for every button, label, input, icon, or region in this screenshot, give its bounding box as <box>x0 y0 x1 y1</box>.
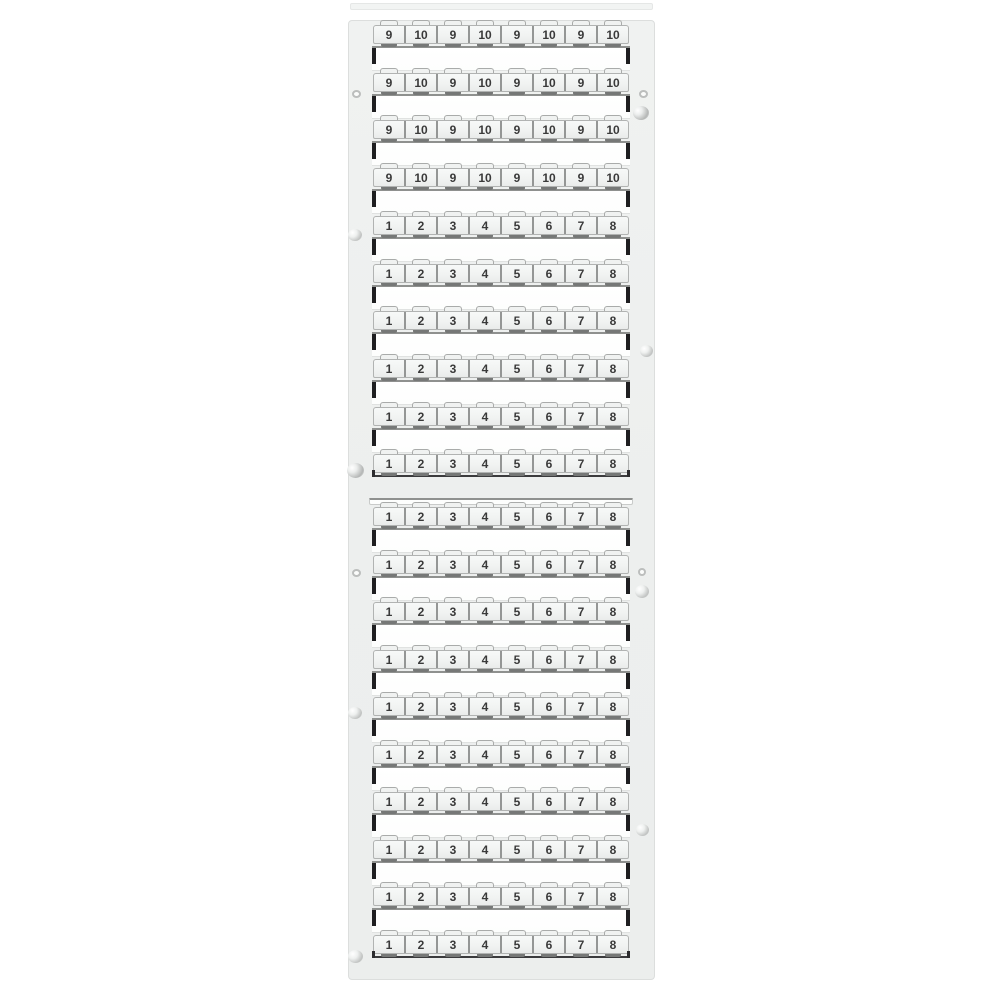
marker-tag: 1 <box>374 651 404 668</box>
marker-tag: 3 <box>436 698 468 715</box>
marker-tag: 2 <box>404 312 436 329</box>
tag-bump <box>469 597 501 602</box>
marker-tag: 5 <box>500 936 532 953</box>
tag-label: 8 <box>610 890 617 904</box>
marker-tag: 3 <box>436 265 468 282</box>
tag-feet <box>373 235 629 239</box>
tag-label: 3 <box>450 843 457 857</box>
tag-bump <box>597 354 629 359</box>
pilot-hole <box>639 90 648 98</box>
tag-bump <box>469 550 501 555</box>
tag-label: 8 <box>610 314 617 328</box>
marker-tag: 9 <box>564 26 596 43</box>
tag-label: 8 <box>610 843 617 857</box>
marker-card: 9109109109109109109109109109109109109109… <box>348 20 655 980</box>
tag-label: 10 <box>414 171 427 185</box>
tag-label: 2 <box>418 410 425 424</box>
tag-foot <box>373 669 405 673</box>
tag-foot <box>405 716 437 720</box>
tag-foot <box>597 859 629 863</box>
marker-tag-strip: 12345678 <box>373 935 629 954</box>
marker-tag: 6 <box>532 888 564 905</box>
marker-row: 12345678 <box>373 935 629 982</box>
tag-foot <box>469 621 501 625</box>
tag-foot <box>437 92 469 96</box>
tag-label: 1 <box>386 795 393 809</box>
tag-bump <box>565 449 597 454</box>
tag-label: 3 <box>450 700 457 714</box>
tag-foot <box>405 906 437 910</box>
tag-foot <box>533 764 565 768</box>
tag-bump <box>373 211 405 216</box>
marker-tag: 5 <box>500 360 532 377</box>
marker-tag-strip: 12345678 <box>373 887 629 906</box>
tag-label: 9 <box>578 76 585 90</box>
tag-foot <box>501 426 533 430</box>
tag-bump <box>565 402 597 407</box>
marker-tag: 1 <box>374 360 404 377</box>
pilot-hole <box>352 569 361 577</box>
tag-foot <box>533 92 565 96</box>
marker-tag: 9 <box>374 26 404 43</box>
marker-tag: 4 <box>468 888 500 905</box>
tag-bump <box>373 449 405 454</box>
tag-label: 8 <box>610 748 617 762</box>
marker-tag: 9 <box>564 74 596 91</box>
tag-label: 1 <box>386 410 393 424</box>
marker-tag: 10 <box>468 26 500 43</box>
tag-foot <box>501 669 533 673</box>
tag-bump <box>405 68 437 73</box>
tag-label: 10 <box>414 76 427 90</box>
tag-bump <box>533 787 565 792</box>
tag-label: 8 <box>610 267 617 281</box>
tag-label: 8 <box>610 938 617 952</box>
marker-tag: 2 <box>404 455 436 472</box>
tag-foot <box>469 716 501 720</box>
tag-foot <box>533 187 565 191</box>
tag-label: 10 <box>414 123 427 137</box>
tag-foot <box>405 283 437 287</box>
marker-tag: 8 <box>596 936 628 953</box>
tag-foot <box>533 526 565 530</box>
marker-tag: 1 <box>374 217 404 234</box>
tag-label: 8 <box>610 558 617 572</box>
tag-bump <box>437 211 469 216</box>
tag-label: 5 <box>514 795 521 809</box>
marker-tag: 9 <box>436 74 468 91</box>
tag-label: 6 <box>546 362 553 376</box>
mold-mark <box>636 824 649 836</box>
pilot-hole <box>352 90 361 98</box>
marker-tag: 9 <box>500 169 532 186</box>
tag-foot <box>437 669 469 673</box>
tag-foot <box>565 811 597 815</box>
tag-label: 7 <box>578 510 585 524</box>
tag-label: 4 <box>482 314 489 328</box>
tag-bump <box>373 787 405 792</box>
marker-tag: 3 <box>436 408 468 425</box>
tag-label: 6 <box>546 267 553 281</box>
tag-label: 5 <box>514 938 521 952</box>
tag-label: 7 <box>578 362 585 376</box>
tag-label: 4 <box>482 410 489 424</box>
tag-bump <box>501 20 533 25</box>
marker-tag-strip: 12345678 <box>373 311 629 330</box>
tag-label: 10 <box>606 76 619 90</box>
tag-bump <box>533 402 565 407</box>
tag-foot <box>501 621 533 625</box>
marker-tag: 10 <box>596 169 628 186</box>
tag-foot <box>565 574 597 578</box>
upper-marker-section: 9109109109109109109109109109109109109109… <box>373 25 629 479</box>
tag-label: 1 <box>386 700 393 714</box>
tag-foot <box>597 187 629 191</box>
tag-label: 10 <box>606 28 619 42</box>
tag-bump <box>501 882 533 887</box>
tag-foot <box>405 44 437 48</box>
tag-foot <box>501 235 533 239</box>
marker-tag: 6 <box>532 265 564 282</box>
tag-feet <box>373 330 629 334</box>
tag-label: 5 <box>514 510 521 524</box>
tag-label: 6 <box>546 938 553 952</box>
tag-bumps <box>373 20 629 25</box>
tag-foot <box>565 906 597 910</box>
marker-tag: 2 <box>404 841 436 858</box>
tag-feet <box>373 44 629 48</box>
marker-tag: 5 <box>500 841 532 858</box>
tag-bump <box>597 550 629 555</box>
tag-label: 6 <box>546 653 553 667</box>
tag-foot <box>373 187 405 191</box>
tag-label: 1 <box>386 219 393 233</box>
tag-bump <box>469 740 501 745</box>
tag-label: 2 <box>418 938 425 952</box>
tag-bump <box>565 163 597 168</box>
tag-label: 3 <box>450 653 457 667</box>
tag-foot <box>405 235 437 239</box>
tag-label: 9 <box>450 171 457 185</box>
tag-bump <box>597 882 629 887</box>
tag-foot <box>501 330 533 334</box>
marker-tag: 8 <box>596 508 628 525</box>
tag-foot <box>373 764 405 768</box>
tag-label: 9 <box>386 76 393 90</box>
tag-foot <box>405 811 437 815</box>
tag-label: 2 <box>418 843 425 857</box>
marker-tag-strip: 12345678 <box>373 555 629 574</box>
marker-tag: 6 <box>532 455 564 472</box>
marker-tag: 7 <box>564 651 596 668</box>
tag-foot <box>597 669 629 673</box>
tag-foot <box>437 473 469 477</box>
tag-bump <box>437 835 469 840</box>
tag-feet <box>373 378 629 382</box>
tag-bump <box>565 68 597 73</box>
tag-bump <box>469 354 501 359</box>
tag-label: 7 <box>578 267 585 281</box>
tag-bump <box>501 68 533 73</box>
marker-tag: 2 <box>404 698 436 715</box>
tag-label: 6 <box>546 605 553 619</box>
marker-tag: 1 <box>374 455 404 472</box>
tag-feet <box>373 764 629 768</box>
tag-bump <box>597 787 629 792</box>
tag-foot <box>469 330 501 334</box>
tag-foot <box>501 906 533 910</box>
tag-foot <box>437 764 469 768</box>
marker-tag: 5 <box>500 651 532 668</box>
tag-label: 1 <box>386 653 393 667</box>
tag-foot <box>533 811 565 815</box>
tag-bumps <box>373 835 629 840</box>
marker-tag: 9 <box>436 121 468 138</box>
tag-label: 2 <box>418 748 425 762</box>
tag-bump <box>437 930 469 935</box>
tag-foot <box>533 669 565 673</box>
tag-label: 1 <box>386 362 393 376</box>
tag-label: 8 <box>610 510 617 524</box>
marker-tag: 1 <box>374 556 404 573</box>
marker-tag: 8 <box>596 746 628 763</box>
marker-tag-strip: 12345678 <box>373 602 629 621</box>
tag-label: 5 <box>514 843 521 857</box>
tag-bump <box>437 550 469 555</box>
tag-label: 6 <box>546 795 553 809</box>
tag-bump <box>373 740 405 745</box>
tag-label: 10 <box>606 123 619 137</box>
tag-bump <box>565 550 597 555</box>
marker-tag: 3 <box>436 841 468 858</box>
tag-bump <box>405 20 437 25</box>
tag-label: 1 <box>386 938 393 952</box>
marker-row: 12345678 <box>373 602 629 649</box>
tag-foot <box>501 44 533 48</box>
marker-tag: 10 <box>468 121 500 138</box>
marker-row: 12345678 <box>373 697 629 744</box>
tag-foot <box>405 330 437 334</box>
tag-foot <box>501 378 533 382</box>
marker-tag: 2 <box>404 360 436 377</box>
marker-tag: 4 <box>468 936 500 953</box>
tag-foot <box>501 811 533 815</box>
marker-tag: 5 <box>500 603 532 620</box>
marker-tag-strip: 12345678 <box>373 792 629 811</box>
tag-bump <box>565 787 597 792</box>
tag-bump <box>565 211 597 216</box>
tag-bump <box>405 645 437 650</box>
marker-row: 910910910910 <box>373 25 629 72</box>
tag-foot <box>501 92 533 96</box>
tag-bump <box>373 550 405 555</box>
tag-label: 4 <box>482 558 489 572</box>
tag-foot <box>469 378 501 382</box>
tag-foot <box>597 330 629 334</box>
tag-label: 4 <box>482 843 489 857</box>
tag-foot <box>501 283 533 287</box>
marker-row: 910910910910 <box>373 168 629 215</box>
tag-foot <box>565 139 597 143</box>
marker-tag: 10 <box>404 169 436 186</box>
tag-bump <box>405 115 437 120</box>
tag-label: 9 <box>578 28 585 42</box>
tag-bump <box>597 20 629 25</box>
marker-tag-strip: 12345678 <box>373 507 629 526</box>
tag-foot <box>501 574 533 578</box>
tag-label: 3 <box>450 938 457 952</box>
marker-tag: 10 <box>532 26 564 43</box>
marker-tag: 6 <box>532 360 564 377</box>
tag-foot <box>533 621 565 625</box>
tag-feet <box>373 426 629 430</box>
tag-bump <box>469 930 501 935</box>
marker-tag: 4 <box>468 217 500 234</box>
tag-bump <box>565 306 597 311</box>
tag-foot <box>405 92 437 96</box>
marker-tag-strip: 910910910910 <box>373 168 629 187</box>
marker-tag: 3 <box>436 360 468 377</box>
marker-tag: 3 <box>436 793 468 810</box>
tag-label: 2 <box>418 795 425 809</box>
tag-label: 7 <box>578 558 585 572</box>
tag-bumps <box>373 692 629 697</box>
marker-tag-strip: 12345678 <box>373 454 629 473</box>
tag-label: 6 <box>546 510 553 524</box>
marker-tag: 3 <box>436 217 468 234</box>
marker-row: 12345678 <box>373 745 629 792</box>
tag-bumps <box>373 787 629 792</box>
tag-bump <box>437 402 469 407</box>
marker-row: 12345678 <box>373 555 629 602</box>
tag-bumps <box>373 354 629 359</box>
tag-label: 10 <box>606 171 619 185</box>
marker-tag: 7 <box>564 793 596 810</box>
tag-feet <box>373 954 629 958</box>
marker-tag: 6 <box>532 746 564 763</box>
tag-foot <box>405 859 437 863</box>
tag-bumps <box>373 597 629 602</box>
marker-tag: 3 <box>436 603 468 620</box>
tag-label: 1 <box>386 558 393 572</box>
tag-label: 5 <box>514 653 521 667</box>
marker-tag-strip: 12345678 <box>373 264 629 283</box>
tag-label: 6 <box>546 314 553 328</box>
tag-label: 9 <box>514 28 521 42</box>
tag-label: 2 <box>418 605 425 619</box>
marker-tag: 4 <box>468 408 500 425</box>
tag-bump <box>533 163 565 168</box>
marker-tag: 3 <box>436 508 468 525</box>
tag-label: 1 <box>386 314 393 328</box>
tag-foot <box>469 859 501 863</box>
tag-bump <box>533 115 565 120</box>
tag-feet <box>373 574 629 578</box>
tag-label: 5 <box>514 457 521 471</box>
marker-tag-strip: 12345678 <box>373 840 629 859</box>
tag-bump <box>533 740 565 745</box>
tag-label: 5 <box>514 314 521 328</box>
tag-bump <box>501 354 533 359</box>
tag-foot <box>373 621 405 625</box>
marker-tag: 7 <box>564 698 596 715</box>
tag-bump <box>469 882 501 887</box>
tag-bump <box>533 930 565 935</box>
marker-row: 12345678 <box>373 650 629 697</box>
tag-bump <box>469 211 501 216</box>
tag-bump <box>597 835 629 840</box>
tag-bump <box>597 115 629 120</box>
tag-label: 10 <box>542 123 555 137</box>
tag-label: 5 <box>514 605 521 619</box>
tag-label: 5 <box>514 267 521 281</box>
tag-label: 3 <box>450 890 457 904</box>
marker-tag: 7 <box>564 312 596 329</box>
tag-bump <box>405 835 437 840</box>
tag-foot <box>373 473 405 477</box>
tag-foot <box>565 716 597 720</box>
tag-foot <box>565 954 597 958</box>
marker-tag: 9 <box>500 121 532 138</box>
marker-row: 12345678 <box>373 840 629 887</box>
tag-bump <box>437 20 469 25</box>
tag-foot <box>437 954 469 958</box>
tag-foot <box>469 473 501 477</box>
tag-label: 9 <box>578 171 585 185</box>
tag-label: 5 <box>514 700 521 714</box>
marker-tag: 2 <box>404 265 436 282</box>
tag-foot <box>405 621 437 625</box>
tag-foot <box>469 574 501 578</box>
marker-tag: 6 <box>532 508 564 525</box>
tag-foot <box>597 621 629 625</box>
marker-tag: 4 <box>468 360 500 377</box>
tag-foot <box>373 526 405 530</box>
tag-bump <box>405 930 437 935</box>
tag-bump <box>597 211 629 216</box>
tag-label: 2 <box>418 510 425 524</box>
marker-tag: 1 <box>374 746 404 763</box>
tag-label: 3 <box>450 314 457 328</box>
marker-tag: 4 <box>468 455 500 472</box>
tag-foot <box>565 92 597 96</box>
marker-tag: 6 <box>532 556 564 573</box>
marker-tag: 8 <box>596 698 628 715</box>
tag-bump <box>533 550 565 555</box>
tag-foot <box>405 526 437 530</box>
tag-bump <box>469 20 501 25</box>
tag-foot <box>565 426 597 430</box>
marker-row: 12345678 <box>373 454 629 501</box>
tag-feet <box>373 811 629 815</box>
tag-bump <box>469 645 501 650</box>
tag-bump <box>501 645 533 650</box>
marker-row: 12345678 <box>373 407 629 454</box>
tag-foot <box>597 574 629 578</box>
tag-bump <box>597 597 629 602</box>
tag-label: 3 <box>450 605 457 619</box>
tag-label: 2 <box>418 700 425 714</box>
marker-tag: 8 <box>596 360 628 377</box>
marker-tag: 2 <box>404 793 436 810</box>
marker-row: 910910910910 <box>373 120 629 167</box>
tag-bump <box>597 502 629 507</box>
tag-foot <box>597 526 629 530</box>
tag-foot <box>533 574 565 578</box>
tag-label: 7 <box>578 457 585 471</box>
tag-label: 8 <box>610 700 617 714</box>
marker-tag: 1 <box>374 793 404 810</box>
